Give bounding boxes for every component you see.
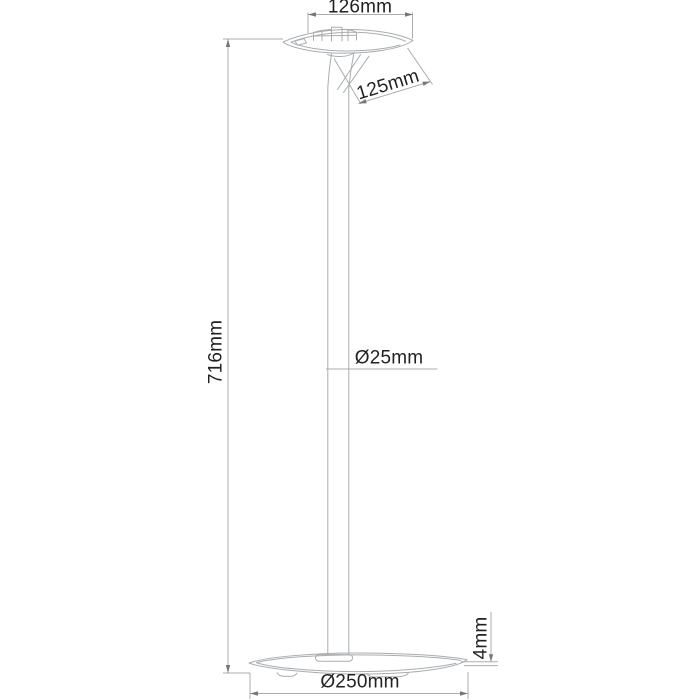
top-plate [283, 27, 413, 53]
dimension-label-base-thickness: 4mm [472, 617, 491, 660]
arrow-top-width-right [405, 12, 413, 16]
dimension-label-top-width: 126mm [328, 0, 392, 17]
arrow-height-bottom [226, 665, 230, 673]
arrow-base-diameter-left [250, 691, 258, 695]
dimension-label-height: 716mm [207, 320, 226, 384]
arrow-top-depth-end [422, 82, 430, 86]
arrow-top-width-left [308, 12, 316, 16]
arrow-base-diameter-right [460, 691, 468, 695]
rim-clip-detail [295, 39, 307, 46]
dimension-label-base-diameter: Ø250mm [320, 673, 399, 692]
pole [328, 88, 349, 655]
stand-dimension-drawing: 126mm 125mm 716mm Ø25mm 4mm Ø250mm [0, 0, 700, 700]
dimension-label-pole-diameter: Ø25mm [355, 349, 424, 368]
arrow-height-top [226, 39, 230, 47]
foot-pad-left [277, 673, 297, 677]
dim-height-lines [223, 39, 283, 673]
stand-line-art [0, 0, 700, 700]
